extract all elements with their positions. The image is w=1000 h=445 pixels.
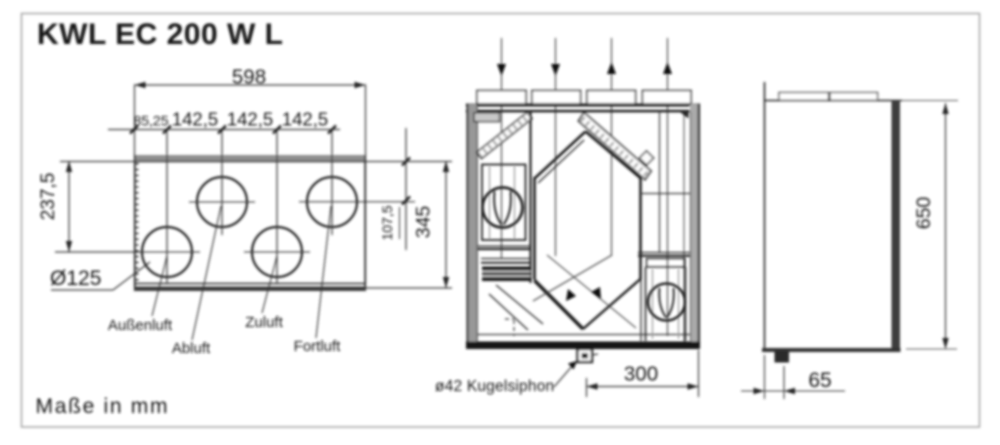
svg-text:300: 300 — [624, 363, 658, 386]
svg-text:650: 650 — [913, 197, 935, 230]
svg-text:Maße in mm: Maße in mm — [36, 395, 170, 418]
svg-text:142,5: 142,5 — [172, 109, 218, 130]
svg-text:345: 345 — [413, 206, 435, 239]
svg-text:107,5: 107,5 — [379, 205, 395, 240]
svg-text:Abluft: Abluft — [172, 340, 211, 357]
svg-text:237,5: 237,5 — [38, 173, 59, 221]
svg-text:KWL EC 200 W L: KWL EC 200 W L — [37, 18, 283, 51]
svg-text:Zuluft: Zuluft — [245, 314, 283, 331]
svg-text:Ø125: Ø125 — [50, 267, 101, 290]
svg-text:Fortluft: Fortluft — [294, 338, 342, 355]
svg-text:142,5: 142,5 — [227, 109, 273, 130]
svg-text:598: 598 — [232, 66, 266, 89]
svg-text:Außenluft: Außenluft — [108, 317, 173, 334]
svg-text:142,5: 142,5 — [282, 109, 328, 130]
svg-text:ø42 Kugelsiphon: ø42 Kugelsiphon — [435, 378, 554, 395]
svg-text:85,25: 85,25 — [133, 113, 168, 129]
svg-text:65: 65 — [808, 369, 831, 392]
